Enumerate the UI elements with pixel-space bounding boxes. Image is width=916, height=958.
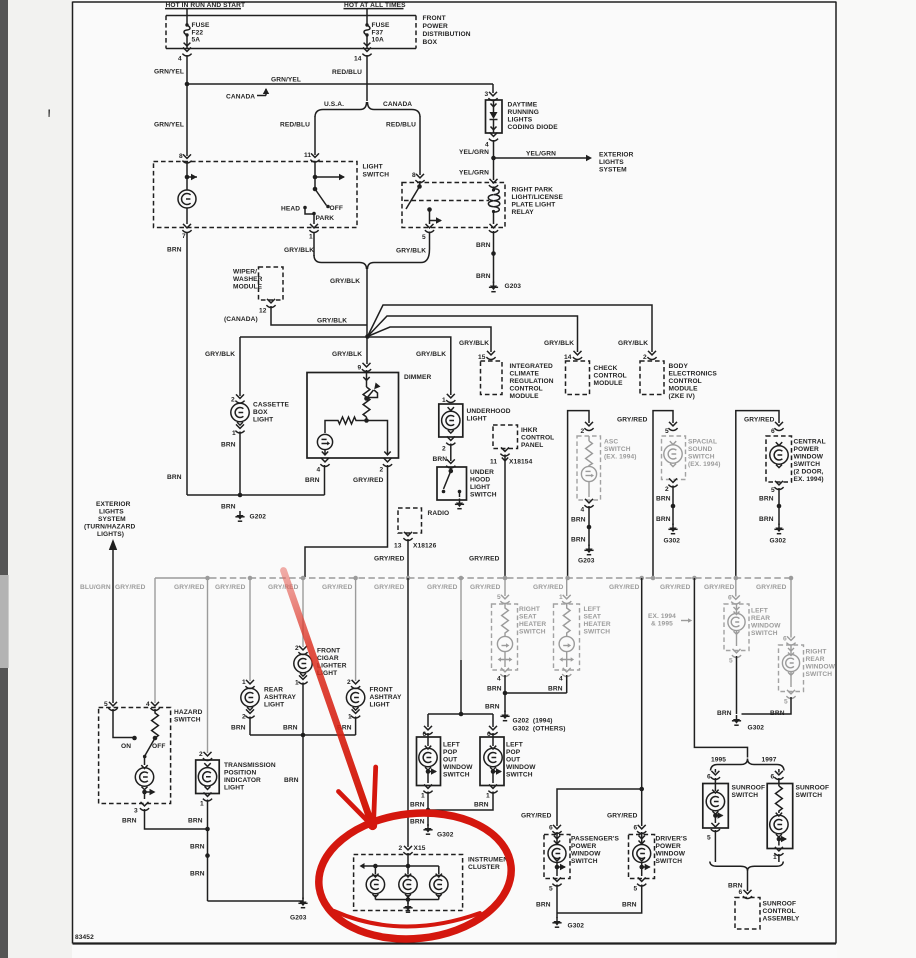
svg-text:83452: 83452 <box>75 934 94 941</box>
svg-text:4: 4 <box>497 676 501 683</box>
svg-text:BOX: BOX <box>253 409 268 416</box>
svg-text:5: 5 <box>497 594 501 601</box>
svg-text:LIGHT: LIGHT <box>363 164 383 171</box>
svg-text:G203: G203 <box>505 283 522 290</box>
svg-text:U.S.A.: U.S.A. <box>324 101 344 108</box>
svg-text:LIGHT: LIGHT <box>253 417 273 424</box>
svg-text:1: 1 <box>421 793 425 800</box>
svg-text:HOOD: HOOD <box>470 477 490 484</box>
svg-text:2: 2 <box>242 714 246 721</box>
svg-text:6: 6 <box>707 774 711 781</box>
svg-text:LIGHTS: LIGHTS <box>508 117 533 124</box>
svg-text:GRY/RED: GRY/RED <box>609 584 640 591</box>
svg-text:SYSTEM: SYSTEM <box>599 167 627 174</box>
svg-text:3: 3 <box>485 91 489 98</box>
svg-text:ASC: ASC <box>604 439 618 446</box>
svg-text:REAR: REAR <box>806 656 825 663</box>
svg-text:G302 (OTHERS): G302 (OTHERS) <box>513 726 566 733</box>
svg-text:6: 6 <box>783 636 787 643</box>
svg-text:GRY/RED: GRY/RED <box>756 584 787 591</box>
svg-text:1: 1 <box>442 397 446 404</box>
svg-text:WINDOW: WINDOW <box>443 764 473 771</box>
svg-text:ON: ON <box>121 743 131 750</box>
svg-text:GRY/BLK: GRY/BLK <box>544 340 574 347</box>
svg-text:MODULE: MODULE <box>510 393 540 400</box>
svg-text:UNDERHOOD: UNDERHOOD <box>467 408 511 415</box>
svg-text:SWITCH: SWITCH <box>796 792 823 799</box>
svg-text:GRY/RED: GRY/RED <box>427 584 458 591</box>
svg-text:POWER: POWER <box>656 843 682 850</box>
svg-text:GRY/BLK: GRY/BLK <box>205 351 235 358</box>
svg-text:G302: G302 <box>568 923 585 930</box>
svg-text:HEATER: HEATER <box>519 621 546 628</box>
svg-text:REAR: REAR <box>264 687 283 694</box>
svg-text:ASHTRAY: ASHTRAY <box>370 694 402 701</box>
svg-text:FRONT: FRONT <box>317 648 340 655</box>
svg-text:BRN: BRN <box>167 247 182 254</box>
svg-text:SWITCH: SWITCH <box>751 630 778 637</box>
svg-text:7: 7 <box>182 233 186 240</box>
svg-text:11: 11 <box>490 459 497 466</box>
svg-text:GRY/RED: GRY/RED <box>469 556 500 563</box>
svg-text:CONTROL: CONTROL <box>521 435 554 442</box>
svg-text:BRN: BRN <box>188 818 203 825</box>
svg-text:EXTERIOR: EXTERIOR <box>599 152 634 159</box>
svg-text:1: 1 <box>486 793 490 800</box>
svg-text:HAZARD: HAZARD <box>174 709 203 716</box>
svg-text:1: 1 <box>773 854 777 861</box>
svg-text:SWITCH: SWITCH <box>470 492 497 499</box>
svg-text:BRN: BRN <box>571 537 586 544</box>
svg-text:G203: G203 <box>290 915 307 922</box>
svg-text:8: 8 <box>179 153 183 160</box>
svg-text:ASHTRAY: ASHTRAY <box>264 694 296 701</box>
svg-text:TRANSMISSION: TRANSMISSION <box>224 762 276 769</box>
svg-text:HEAD: HEAD <box>281 206 300 213</box>
svg-text:IHKR: IHKR <box>521 427 538 434</box>
svg-text:EX. 1994: EX. 1994 <box>648 613 676 620</box>
svg-text:RED/BLU: RED/BLU <box>386 122 416 129</box>
svg-text:GRY/BLK: GRY/BLK <box>459 340 489 347</box>
svg-text:GRY/RED: GRY/RED <box>115 584 146 591</box>
svg-text:POWER: POWER <box>423 23 449 30</box>
svg-text:INTEGRATED: INTEGRATED <box>510 363 554 370</box>
svg-text:CONTROL: CONTROL <box>669 378 702 385</box>
svg-text:LIGHT: LIGHT <box>370 702 390 709</box>
svg-text:G302: G302 <box>437 832 454 839</box>
svg-text:6: 6 <box>739 889 743 896</box>
svg-text:LIGHTS): LIGHTS) <box>97 531 124 538</box>
svg-text:BRN: BRN <box>305 477 320 484</box>
svg-text:WINDOW: WINDOW <box>794 454 824 461</box>
svg-text:2: 2 <box>231 397 235 404</box>
svg-text:& 1995: & 1995 <box>651 621 673 628</box>
svg-text:4: 4 <box>485 142 489 149</box>
svg-text:2: 2 <box>442 446 446 453</box>
svg-text:OFF: OFF <box>330 205 343 212</box>
svg-text:PARK: PARK <box>316 215 335 222</box>
svg-text:UNDER: UNDER <box>470 469 494 476</box>
svg-text:BODY: BODY <box>669 363 689 370</box>
svg-text:5: 5 <box>634 886 638 893</box>
svg-text:OUT: OUT <box>506 757 520 764</box>
svg-text:POWER: POWER <box>571 843 597 850</box>
svg-text:WINDOW: WINDOW <box>506 764 536 771</box>
svg-text:6: 6 <box>771 428 775 435</box>
svg-text:DISTRIBUTION: DISTRIBUTION <box>423 31 471 38</box>
svg-text:GRY/RED: GRY/RED <box>660 584 691 591</box>
svg-text:9: 9 <box>358 365 362 372</box>
svg-text:BRN: BRN <box>622 902 637 909</box>
svg-text:WIPER/: WIPER/ <box>233 269 257 276</box>
svg-text:LEFT: LEFT <box>506 742 523 749</box>
svg-text:4: 4 <box>178 56 182 63</box>
svg-text:5: 5 <box>549 886 553 893</box>
svg-text:2: 2 <box>665 486 669 493</box>
svg-text:GRY/BLK: GRY/BLK <box>416 351 446 358</box>
svg-text:1: 1 <box>232 430 236 437</box>
svg-text:LIGHT: LIGHT <box>467 416 487 423</box>
svg-text:5: 5 <box>422 234 426 241</box>
svg-text:4: 4 <box>581 507 585 514</box>
svg-text:RED/BLU: RED/BLU <box>332 69 362 76</box>
svg-text:1: 1 <box>559 594 563 601</box>
svg-text:CASSETTE: CASSETTE <box>253 402 289 409</box>
svg-text:BRN: BRN <box>231 725 246 732</box>
svg-text:12: 12 <box>259 308 267 315</box>
svg-text:BLU/GRN: BLU/GRN <box>80 584 111 591</box>
svg-text:PASSENGER'S: PASSENGER'S <box>571 836 619 843</box>
svg-text:YEL/GRN: YEL/GRN <box>526 151 556 158</box>
svg-text:X18126: X18126 <box>413 543 437 550</box>
svg-text:LIGHTS: LIGHTS <box>599 159 624 166</box>
svg-text:RUNNING: RUNNING <box>508 109 539 116</box>
svg-text:SWITCH: SWITCH <box>519 629 546 636</box>
svg-text:EX. 1994): EX. 1994) <box>794 476 824 483</box>
svg-text:1997: 1997 <box>762 757 777 764</box>
svg-text:BRN: BRN <box>190 844 205 851</box>
svg-text:EXTERIOR: EXTERIOR <box>96 501 131 508</box>
svg-text:OUT: OUT <box>443 757 457 764</box>
svg-text:SUNROOF: SUNROOF <box>732 785 766 792</box>
svg-text:GRY/RED: GRY/RED <box>470 584 501 591</box>
svg-text:BRN: BRN <box>221 504 236 511</box>
svg-text:GRY/RED: GRY/RED <box>353 477 384 484</box>
svg-text:2: 2 <box>581 428 585 435</box>
svg-text:CIGAR: CIGAR <box>317 655 339 662</box>
svg-text:CENTRAL: CENTRAL <box>794 439 826 446</box>
svg-text:GRN/YEL: GRN/YEL <box>154 122 184 129</box>
svg-text:5: 5 <box>729 658 733 665</box>
svg-text:SWITCH: SWITCH <box>174 717 201 724</box>
svg-text:14: 14 <box>564 354 572 361</box>
svg-text:GRY/BLK: GRY/BLK <box>330 278 360 285</box>
svg-text:FRONT: FRONT <box>423 15 446 22</box>
svg-text:BRN: BRN <box>122 818 137 825</box>
svg-text:BRN: BRN <box>410 802 425 809</box>
svg-text:DIMMER: DIMMER <box>404 374 431 381</box>
svg-text:BRN: BRN <box>474 802 489 809</box>
svg-text:2: 2 <box>295 645 299 652</box>
svg-text:(EX. 1994): (EX. 1994) <box>688 461 721 468</box>
svg-text:GRY/RED: GRY/RED <box>268 584 299 591</box>
svg-text:ELECTRONICS: ELECTRONICS <box>669 371 718 378</box>
svg-text:GRY/RED: GRY/RED <box>704 584 735 591</box>
svg-text:LEFT: LEFT <box>443 742 460 749</box>
svg-text:RELAY: RELAY <box>512 209 535 216</box>
svg-text:1: 1 <box>242 679 246 686</box>
svg-text:HEATER: HEATER <box>584 621 611 628</box>
svg-text:SEAT: SEAT <box>584 614 602 621</box>
svg-text:BRN: BRN <box>656 516 671 523</box>
svg-text:1: 1 <box>295 680 299 687</box>
svg-text:1: 1 <box>200 801 204 808</box>
svg-text:DRIVER'S: DRIVER'S <box>656 836 688 843</box>
svg-text:RIGHT PARK: RIGHT PARK <box>512 187 554 194</box>
svg-text:(EX. 1994): (EX. 1994) <box>604 454 637 461</box>
svg-text:G202: G202 <box>250 514 267 521</box>
svg-text:8: 8 <box>412 172 416 179</box>
svg-text:13: 13 <box>394 543 402 550</box>
svg-text:(CANADA): (CANADA) <box>224 316 258 323</box>
svg-text:GRY/RED: GRY/RED <box>174 584 205 591</box>
svg-text:WINDOW: WINDOW <box>751 623 781 630</box>
svg-text:MODULE: MODULE <box>594 380 624 387</box>
svg-text:CLIMATE: CLIMATE <box>510 371 540 378</box>
svg-text:WINDOW: WINDOW <box>806 664 836 671</box>
svg-text:GRY/RED: GRY/RED <box>521 813 552 820</box>
svg-text:5A: 5A <box>192 37 201 44</box>
svg-text:(2 DOOR,: (2 DOOR, <box>794 469 824 476</box>
svg-text:LEFT: LEFT <box>751 608 768 615</box>
svg-text:GRN/YEL: GRN/YEL <box>154 69 184 76</box>
svg-text:GRY/BLK: GRY/BLK <box>396 248 426 255</box>
svg-text:BRN: BRN <box>759 516 774 523</box>
svg-text:CLUSTER: CLUSTER <box>468 864 500 871</box>
svg-text:SWITCH: SWITCH <box>604 446 631 453</box>
svg-text:5: 5 <box>707 835 711 842</box>
svg-text:SWITCH: SWITCH <box>732 792 759 799</box>
svg-text:FRONT: FRONT <box>370 687 393 694</box>
svg-text:SWITCH: SWITCH <box>584 629 611 636</box>
svg-text:OFF: OFF <box>152 743 165 750</box>
svg-text:GRY/BLK: GRY/BLK <box>284 247 314 254</box>
svg-text:GRY/RED: GRY/RED <box>215 584 246 591</box>
svg-text:SUNROOF: SUNROOF <box>796 785 830 792</box>
svg-text:2: 2 <box>199 751 203 758</box>
svg-text:RIGHT: RIGHT <box>806 649 827 656</box>
svg-text:2: 2 <box>399 845 403 852</box>
svg-text:BRN: BRN <box>167 474 182 481</box>
svg-text:SWITCH: SWITCH <box>688 454 715 461</box>
svg-text:YEL/GRN: YEL/GRN <box>459 170 489 177</box>
svg-text:6: 6 <box>728 595 732 602</box>
svg-text:REGULATION: REGULATION <box>510 378 554 385</box>
svg-text:G302: G302 <box>664 538 681 545</box>
svg-text:SWITCH: SWITCH <box>571 858 598 865</box>
svg-text:ASSEMBLY: ASSEMBLY <box>763 916 800 923</box>
svg-text:GRY/RED: GRY/RED <box>322 584 353 591</box>
svg-text:LIGHT: LIGHT <box>224 785 244 792</box>
svg-text:WINDOW: WINDOW <box>571 851 601 858</box>
svg-text:GRY/BLK: GRY/BLK <box>317 318 347 325</box>
svg-text:1: 1 <box>309 234 313 241</box>
svg-text:LEFT: LEFT <box>584 606 601 613</box>
svg-text:RADIO: RADIO <box>428 510 450 517</box>
svg-text:SPACIAL: SPACIAL <box>688 439 717 446</box>
svg-text:G202 (1994): G202 (1994) <box>513 718 553 725</box>
svg-text:BRN: BRN <box>656 496 671 503</box>
svg-text:2: 2 <box>380 467 384 474</box>
svg-text:POP: POP <box>506 749 521 756</box>
svg-text:POSITION: POSITION <box>224 770 256 777</box>
svg-text:DAYTIME: DAYTIME <box>508 102 538 109</box>
svg-text:FUSE: FUSE <box>192 22 210 29</box>
svg-text:GRY/RED: GRY/RED <box>374 584 405 591</box>
svg-text:BRN: BRN <box>410 819 425 826</box>
svg-text:5: 5 <box>771 487 775 494</box>
svg-text:SWITCH: SWITCH <box>806 671 833 678</box>
svg-text:WINDOW: WINDOW <box>656 851 686 858</box>
svg-text:SWITCH: SWITCH <box>363 172 390 179</box>
svg-text:CHECK: CHECK <box>594 365 618 372</box>
svg-text:(TURN/HAZARD: (TURN/HAZARD <box>84 524 136 531</box>
svg-text:RIGHT: RIGHT <box>519 606 540 613</box>
svg-text:3: 3 <box>134 808 138 815</box>
svg-text:BRN: BRN <box>284 777 299 784</box>
svg-text:10A: 10A <box>372 37 385 44</box>
svg-text:POP: POP <box>443 749 458 756</box>
svg-text:G203: G203 <box>578 558 595 565</box>
svg-text:BRN: BRN <box>536 902 551 909</box>
svg-text:BRN: BRN <box>433 456 448 463</box>
svg-text:GRY/RED: GRY/RED <box>374 556 405 563</box>
svg-text:15: 15 <box>478 354 486 361</box>
svg-text:6: 6 <box>549 825 553 832</box>
svg-text:G302: G302 <box>770 538 787 545</box>
svg-text:GRN/YEL: GRN/YEL <box>271 77 301 84</box>
svg-text:MODULE: MODULE <box>669 386 699 393</box>
svg-text:1995: 1995 <box>711 757 726 764</box>
svg-text:LIGHTS: LIGHTS <box>99 509 124 516</box>
svg-text:SOUND: SOUND <box>688 446 712 453</box>
svg-text:CODING DIODE: CODING DIODE <box>508 124 559 131</box>
svg-text:GRY/RED: GRY/RED <box>533 584 564 591</box>
svg-text:GRY/RED: GRY/RED <box>744 417 775 424</box>
svg-text:4: 4 <box>317 467 321 474</box>
svg-text:2: 2 <box>643 354 647 361</box>
svg-text:GRY/RED: GRY/RED <box>607 813 638 820</box>
svg-text:BRN: BRN <box>221 442 236 449</box>
svg-text:SWITCH: SWITCH <box>443 772 470 779</box>
svg-text:BRN: BRN <box>485 704 500 711</box>
svg-text:BRN: BRN <box>717 710 732 717</box>
svg-text:CANADA: CANADA <box>226 94 255 101</box>
svg-text:BOX: BOX <box>423 39 438 46</box>
svg-text:6: 6 <box>771 774 775 781</box>
svg-text:GRY/RED: GRY/RED <box>617 417 648 424</box>
svg-text:LIGHT: LIGHT <box>264 702 284 709</box>
svg-text:CONTROL: CONTROL <box>763 908 796 915</box>
svg-text:CONTROL: CONTROL <box>510 386 543 393</box>
svg-text:PLATE LIGHT: PLATE LIGHT <box>512 202 556 209</box>
svg-text:GRY/BLK: GRY/BLK <box>332 351 362 358</box>
svg-text:4: 4 <box>559 676 563 683</box>
svg-text:F37: F37 <box>372 29 384 36</box>
svg-text:14: 14 <box>354 56 362 63</box>
svg-text:X15: X15 <box>414 845 426 852</box>
svg-text:6: 6 <box>634 825 638 832</box>
svg-text:SUNROOF: SUNROOF <box>763 901 797 908</box>
svg-text:BRN: BRN <box>487 686 502 693</box>
svg-text:SWITCH: SWITCH <box>794 461 821 468</box>
svg-text:LIGHT: LIGHT <box>470 484 490 491</box>
svg-text:FUSE: FUSE <box>372 22 390 29</box>
svg-text:2: 2 <box>347 679 351 686</box>
svg-text:SWITCH: SWITCH <box>506 772 533 779</box>
svg-text:LIGHT/LICENSE: LIGHT/LICENSE <box>512 194 564 201</box>
svg-text:BRN: BRN <box>283 725 298 732</box>
svg-text:RED/BLU: RED/BLU <box>280 122 310 129</box>
svg-text:REAR: REAR <box>751 615 770 622</box>
svg-text:BRN: BRN <box>571 517 586 524</box>
svg-text:11: 11 <box>304 152 311 159</box>
svg-text:BRN: BRN <box>548 686 563 693</box>
svg-text:SEAT: SEAT <box>519 614 537 621</box>
svg-text:GRY/BLK: GRY/BLK <box>618 340 648 347</box>
svg-text:5: 5 <box>665 428 669 435</box>
svg-text:F22: F22 <box>192 29 204 36</box>
svg-text:BRN: BRN <box>759 496 774 503</box>
svg-text:5: 5 <box>784 699 788 706</box>
svg-text:X18154: X18154 <box>509 459 533 466</box>
svg-text:BRN: BRN <box>476 273 491 280</box>
svg-text:G302: G302 <box>748 725 765 732</box>
svg-text:BRN: BRN <box>190 871 205 878</box>
svg-text:1: 1 <box>348 714 352 721</box>
svg-text:BRN: BRN <box>476 242 491 249</box>
svg-text:PANEL: PANEL <box>521 442 543 449</box>
svg-text:(ZKE IV): (ZKE IV) <box>669 393 695 400</box>
svg-text:YEL/GRN: YEL/GRN <box>459 149 489 156</box>
svg-text:CONTROL: CONTROL <box>594 373 627 380</box>
svg-text:LIGHTER: LIGHTER <box>317 663 347 670</box>
svg-text:INDICATOR: INDICATOR <box>224 777 261 784</box>
svg-text:SYSTEM: SYSTEM <box>98 516 126 523</box>
svg-text:POWER: POWER <box>794 446 820 453</box>
svg-text:CANADA: CANADA <box>383 101 412 108</box>
svg-text:SWITCH: SWITCH <box>656 858 683 865</box>
